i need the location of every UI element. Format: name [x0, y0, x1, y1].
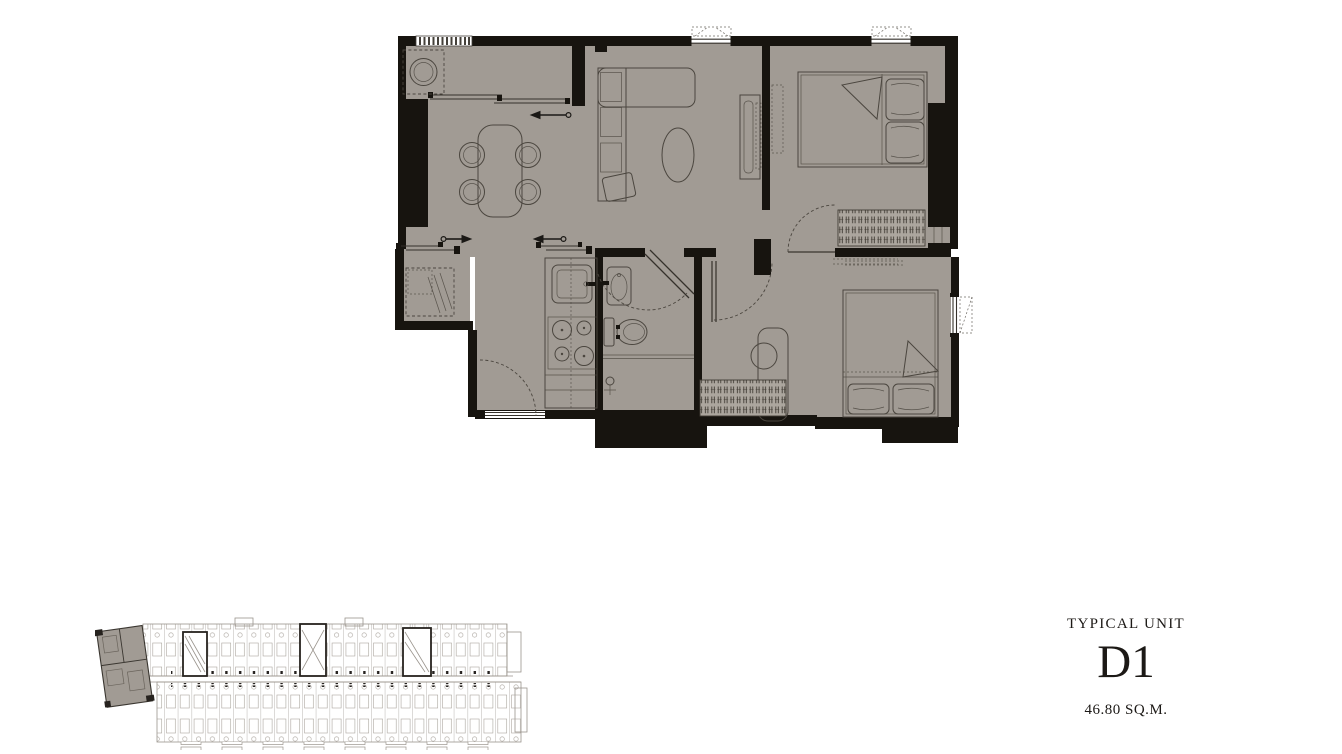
balcony-row: [175, 742, 505, 750]
floor-plan-sheet: TYPICAL UNIT D1 46.80 SQ.M.: [0, 0, 1342, 754]
unit-type-title: TYPICAL UNIT: [1040, 616, 1212, 633]
ac-condenser-icon: [692, 27, 911, 36]
bedroom2-wardrobe: [700, 380, 786, 416]
unit-area: 46.80 SQ.M.: [1040, 702, 1212, 719]
unit-label-block: TYPICAL UNIT D1 46.80 SQ.M.: [1040, 616, 1212, 719]
window-shelf-dashed: [960, 297, 972, 333]
louver-vent: [416, 36, 472, 46]
unit-code: D1: [1040, 638, 1212, 687]
key-plan-building: [137, 618, 527, 750]
unit-floor-plan: [390, 25, 990, 455]
building-key-plan: [95, 610, 531, 754]
